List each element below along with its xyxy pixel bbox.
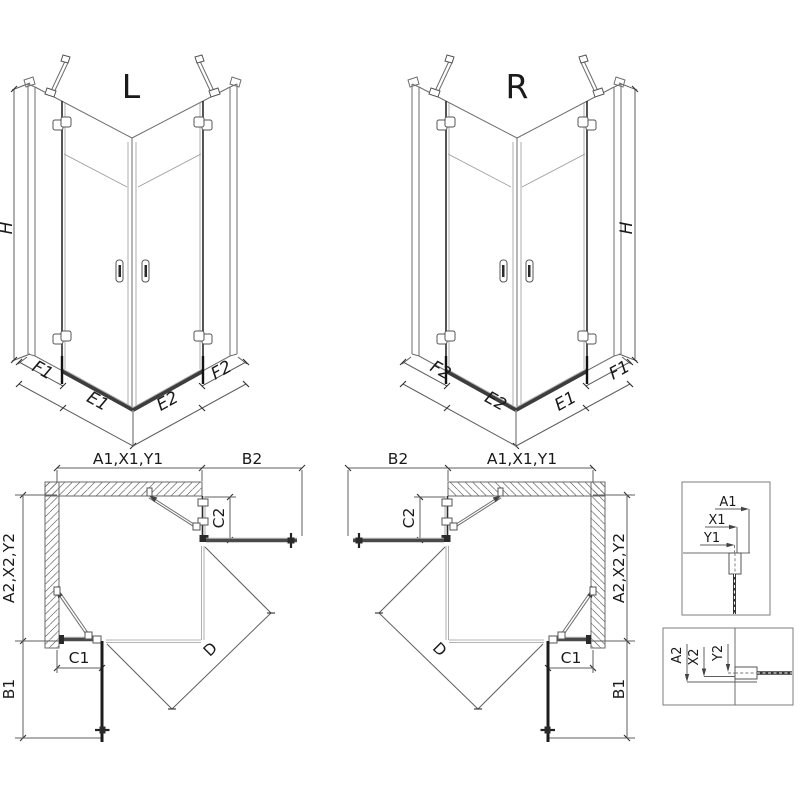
segment-label-e1: E1 (551, 388, 580, 416)
return-panel-label: C2 (210, 508, 228, 529)
iso-geometry (11, 55, 249, 449)
segment-label-e1: E1 (83, 388, 112, 416)
glass-reference-label: Y1 (703, 531, 720, 546)
profile-reference-label: X1 (708, 513, 725, 528)
walls-hatched (45, 482, 202, 648)
height-label: H (617, 221, 637, 234)
closed-door-outlines (106, 546, 204, 643)
plan-view-left-variant: A1,X1,Y1 B2 A2,X2,Y2 B1 C2 C1 D (5, 452, 325, 752)
height-label: H (0, 221, 17, 234)
variant-label-left: L (122, 67, 141, 106)
profile-reference-label: X2 (687, 648, 702, 665)
detail-measure-reference-vertical: A1 X1 Y1 (678, 478, 776, 620)
door-return-label: B2 (388, 450, 409, 468)
outer-reference-label: A1 (719, 495, 736, 510)
iso-view-right-variant: R H F2 E2 E1 F1 (398, 46, 650, 450)
variant-label-right: R (506, 67, 529, 106)
left-side-panel (24, 77, 35, 356)
entry-diagonal-label: D (200, 639, 221, 660)
plan-view-right-variant: B2 A1,X1,Y1 C2 A2,X2,Y2 B1 C1 D (325, 452, 645, 752)
iso-view-left-variant: L H F1 E1 E2 F2 (0, 46, 250, 450)
detail-measure-reference-horizontal: A2 X2 Y2 (660, 624, 798, 710)
plan-geometry (15, 465, 305, 742)
top-dimension-chain (54, 465, 305, 536)
door-panel-label: B1 (610, 679, 628, 700)
segment-label-e2: E2 (153, 388, 182, 416)
segment-label-f2: F2 (427, 357, 455, 384)
wall-profile-section (683, 553, 750, 614)
right-side-panel (230, 77, 241, 356)
door-return-label: B2 (242, 450, 263, 468)
entry-diagonal-dimension (107, 547, 275, 709)
depth-total-label: A2,X2,Y2 (0, 533, 18, 603)
mirrored-iso-geometry (400, 55, 638, 449)
width-total-label: A1,X1,Y1 (93, 450, 163, 468)
width-total-label: A1,X1,Y1 (487, 450, 557, 468)
glass-walls (35, 87, 230, 409)
shower-enclosure-technical-diagram: L H F1 E1 E2 F2 R H F2 E2 E1 F1 (0, 0, 800, 800)
return-panel-label: C2 (400, 508, 418, 529)
mirrored-plan-geometry (345, 465, 635, 742)
outer-reference-label: A2 (670, 646, 685, 663)
glass-reference-label: Y2 (711, 645, 726, 662)
entry-diagonal-label: D (429, 639, 450, 660)
door-panel-label: B1 (0, 679, 18, 700)
wall-profile-section (735, 628, 792, 705)
fixed-panel-label: C1 (69, 649, 90, 667)
fixed-panel-label: C1 (561, 649, 582, 667)
depth-total-label: A2,X2,Y2 (610, 533, 628, 603)
